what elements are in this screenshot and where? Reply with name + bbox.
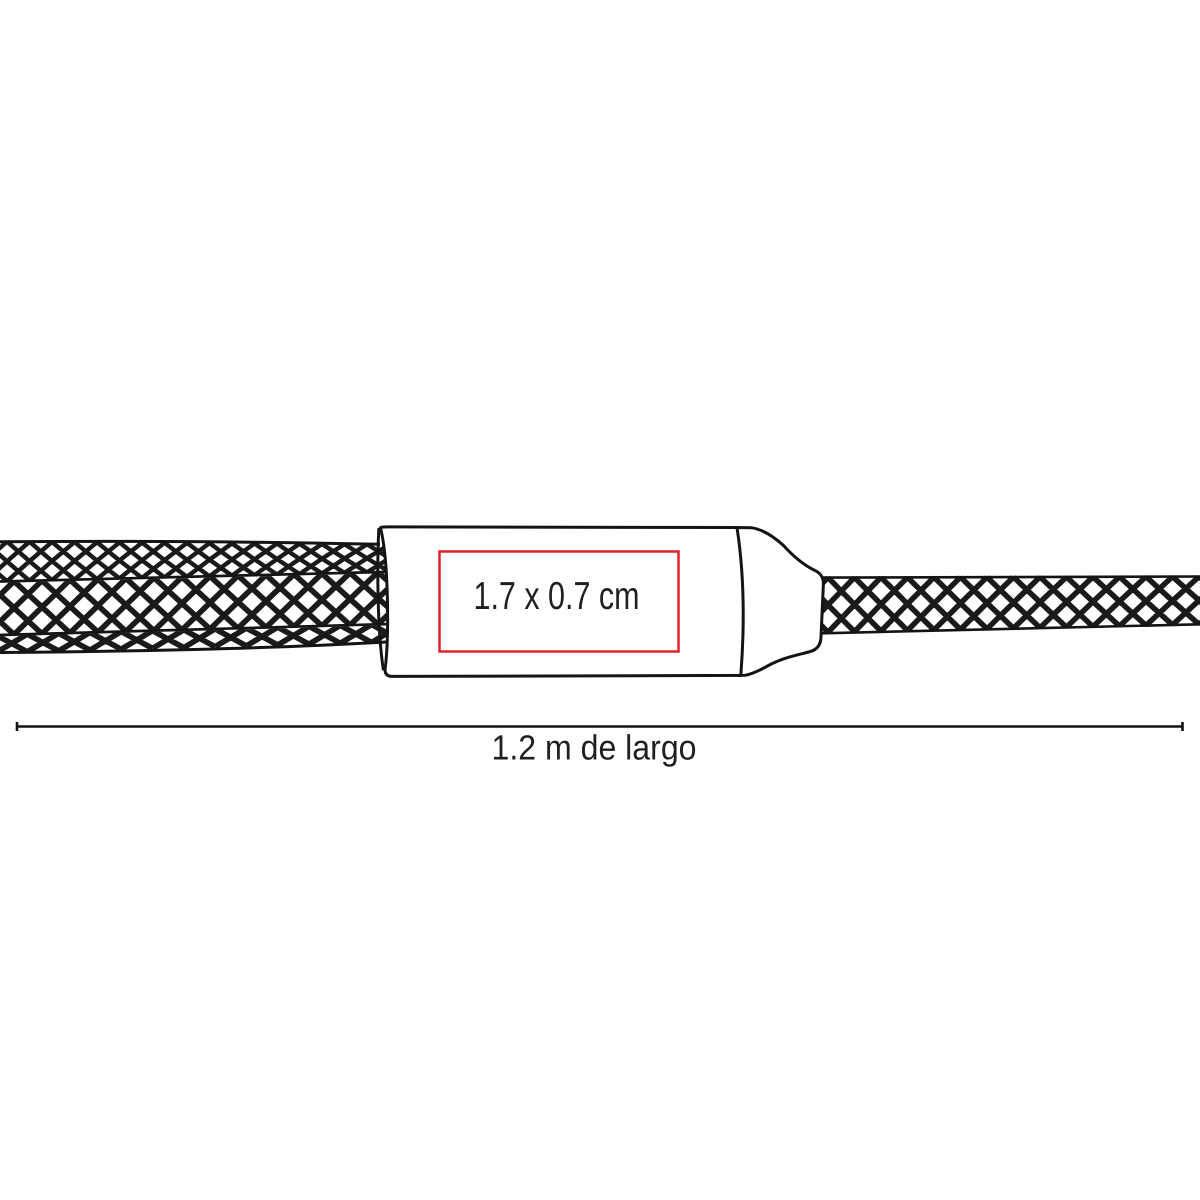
svg-text:1.2 m de largo: 1.2 m de largo <box>492 729 697 768</box>
svg-text:1.7 x 0.7 cm: 1.7 x 0.7 cm <box>474 575 640 618</box>
